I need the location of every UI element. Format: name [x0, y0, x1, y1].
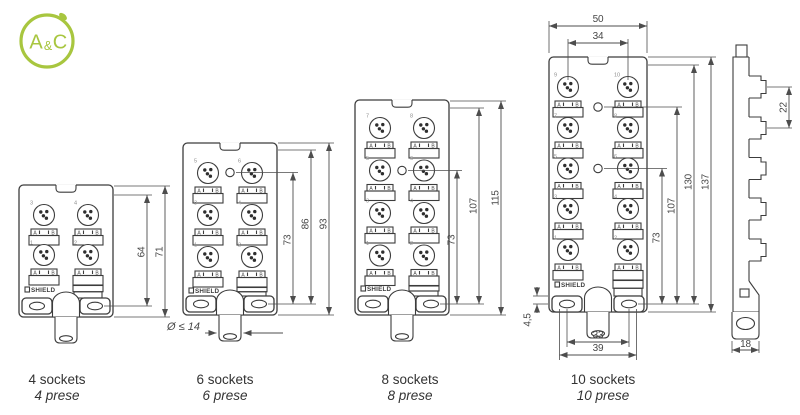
socket-number: 7 [554, 114, 557, 120]
socket-number: 9 [554, 73, 557, 79]
socket-pin [89, 217, 92, 220]
socket-pin [42, 254, 45, 257]
socket-pin [203, 210, 206, 213]
socket-number: 8 [410, 114, 413, 120]
socket-pin [86, 254, 89, 257]
socket-pin [203, 252, 206, 255]
cable-gland-body [55, 317, 77, 343]
socket-pin [253, 259, 256, 262]
socket-number: 4 [238, 201, 241, 207]
socket-pin [45, 250, 48, 253]
socket-pin [569, 204, 572, 207]
socket-pin [569, 89, 572, 92]
socket-pin [39, 210, 42, 213]
socket-pin [425, 172, 428, 175]
dimension-label: 50 [593, 14, 604, 25]
socket-pin [629, 123, 632, 126]
socket-pin [623, 245, 626, 248]
socket-pin [629, 130, 632, 133]
socket-pin [89, 210, 92, 213]
socket-pin [381, 172, 384, 175]
socket-pin [566, 86, 569, 89]
dimension-label: 64 [137, 246, 148, 257]
socket-pin [569, 211, 572, 214]
caption-sockets: 8 sockets [381, 372, 438, 387]
shield-label: SHIELD [367, 286, 392, 293]
socket-pin [626, 127, 629, 130]
mounting-hole [594, 103, 602, 111]
caption-prese: 8 prese [387, 388, 432, 403]
socket-number: 1 [30, 241, 33, 247]
socket-pin [629, 82, 632, 85]
socket-pin [623, 82, 626, 85]
socket-number: 3 [366, 199, 369, 205]
dimension-label: 22 [779, 102, 790, 113]
mounting-tab [186, 296, 216, 312]
caption-sockets: 4 sockets [28, 372, 85, 387]
cable-gland-body [219, 315, 241, 341]
socket-number: 4 [614, 195, 617, 201]
socket-pin [626, 249, 629, 252]
socket-pin [206, 172, 209, 175]
socket-pin [381, 257, 384, 260]
socket-number: 6 [410, 156, 413, 162]
socket-number: 2 [238, 243, 241, 249]
socket-pin [209, 168, 212, 171]
socket-pin [375, 123, 378, 126]
socket-pin [209, 217, 212, 220]
socket-pin [569, 252, 572, 255]
caption-prese: 6 prese [202, 388, 247, 403]
socket-pin [83, 210, 86, 213]
socket-pin [629, 163, 632, 166]
socket-pin [425, 123, 428, 126]
socket-number: 5 [366, 156, 369, 162]
socket-pin [566, 208, 569, 211]
socket-number: 6 [238, 159, 241, 165]
socket-number: 3 [30, 201, 33, 207]
caption-sockets: 6 sockets [196, 372, 253, 387]
mounting-tab [22, 298, 52, 314]
socket-pin [425, 208, 428, 211]
socket-pin [566, 127, 569, 130]
socket-pin [422, 212, 425, 215]
socket-number: 2 [74, 241, 77, 247]
socket-pin [45, 210, 48, 213]
shield-label: SHIELD [561, 282, 586, 289]
socket-pin [209, 175, 212, 178]
shield-label: SHIELD [195, 288, 220, 295]
dimension-label: 73 [652, 232, 663, 243]
socket-number: 1 [554, 236, 557, 242]
socket-pin [381, 165, 384, 168]
socket-pin [563, 245, 566, 248]
dimension-label: 71 [155, 246, 166, 257]
dimension-label: 107 [469, 197, 480, 214]
catalog-drawing-page: A & C 3AB4AB1AB2ABSHIELD64715AB6AB3AB4AB… [0, 0, 800, 415]
socket-pin [381, 130, 384, 133]
dimension-label: 18 [740, 339, 751, 350]
caption-prese: 10 prese [577, 388, 630, 403]
socket-pin [425, 165, 428, 168]
socket-pin [378, 212, 381, 215]
socket-pin [89, 250, 92, 253]
socket-pin [422, 127, 425, 130]
socket-number: 7 [366, 114, 369, 120]
socket-pin [209, 252, 212, 255]
socket-pin [209, 210, 212, 213]
socket-pin [253, 252, 256, 255]
socket-pin [566, 249, 569, 252]
socket-pin [425, 215, 428, 218]
logo-letter-c: C [53, 32, 67, 54]
socket-pin [629, 89, 632, 92]
socket-pin [629, 170, 632, 173]
cable-gland-dome [585, 287, 612, 312]
top-notch-fill [392, 99, 412, 107]
dimension-label: 4,5 [523, 313, 534, 327]
socket-pin [569, 82, 572, 85]
socket-pin [381, 123, 384, 126]
socket-pin [378, 127, 381, 130]
socket-pin [250, 214, 253, 217]
dimension-label: 73 [447, 234, 458, 245]
socket-number: 5 [554, 154, 557, 160]
socket-pin [569, 130, 572, 133]
socket-pin [563, 164, 566, 167]
technical-drawing-canvas: A & C 3AB4AB1AB2ABSHIELD64715AB6AB3AB4AB… [0, 0, 800, 415]
socket-pin [381, 208, 384, 211]
socket-pin [623, 204, 626, 207]
dimension-label: 107 [667, 197, 678, 214]
socket-pin [569, 163, 572, 166]
socket-pin [203, 168, 206, 171]
gland-diameter-note: Ø ≤ 14 [166, 321, 200, 333]
socket-number: 3 [194, 201, 197, 207]
socket-pin [623, 123, 626, 126]
socket-pin [626, 86, 629, 89]
dimension-label: 115 [491, 190, 502, 206]
socket-pin [375, 251, 378, 254]
side-cable-gland [732, 312, 759, 339]
socket-pin [253, 168, 256, 171]
dimension-label: 34 [593, 31, 604, 42]
socket-pin [247, 168, 250, 171]
dimension-label: 39 [593, 343, 604, 354]
shield-label: SHIELD [31, 287, 56, 294]
socket-number: 8 [614, 114, 617, 120]
socket-pin [419, 208, 422, 211]
mounting-hole [398, 166, 406, 174]
socket-pin [419, 166, 422, 169]
cable-gland-dome [53, 292, 80, 317]
socket-pin [206, 256, 209, 259]
socket-pin [375, 166, 378, 169]
dimension-label: 33 [593, 330, 604, 341]
top-notch-fill [220, 142, 240, 150]
socket-pin [42, 214, 45, 217]
socket-pin [626, 208, 629, 211]
socket-pin [629, 245, 632, 248]
cable-gland-body [391, 315, 413, 341]
socket-pin [83, 250, 86, 253]
socket-pin [247, 252, 250, 255]
dimension-label: 86 [301, 218, 312, 229]
socket-pin [253, 217, 256, 220]
socket-pin [253, 175, 256, 178]
socket-pin [39, 250, 42, 253]
socket-pin [563, 204, 566, 207]
socket-pin [425, 130, 428, 133]
socket-number: 1 [366, 241, 369, 247]
socket-number: 1 [194, 243, 197, 249]
caption-prese: 4 prese [34, 388, 79, 403]
socket-pin [623, 164, 626, 167]
socket-pin [422, 255, 425, 258]
dimension-label: 73 [283, 234, 294, 245]
socket-pin [86, 214, 89, 217]
mounting-tab [358, 296, 388, 312]
socket-pin [45, 257, 48, 260]
mounting-hole [226, 168, 234, 176]
socket-pin [419, 251, 422, 254]
caption-sockets: 10 sockets [571, 372, 636, 387]
socket-pin [45, 217, 48, 220]
socket-pin [563, 123, 566, 126]
socket-pin [629, 204, 632, 207]
socket-number: 3 [554, 195, 557, 201]
socket-number: 6 [614, 154, 617, 160]
socket-pin [378, 255, 381, 258]
top-notch-fill [588, 56, 608, 64]
socket-pin [569, 123, 572, 126]
socket-pin [381, 250, 384, 253]
socket-number: 2 [410, 241, 413, 247]
socket-pin [419, 123, 422, 126]
cable-gland-dome [389, 290, 416, 315]
socket-pin [253, 210, 256, 213]
socket-pin [563, 82, 566, 85]
dimension-label: 93 [319, 218, 330, 229]
socket-number: 2 [614, 236, 617, 242]
socket-pin [425, 250, 428, 253]
socket-pin [569, 170, 572, 173]
socket-pin [206, 214, 209, 217]
dimension-label: 137 [701, 173, 712, 190]
socket-pin [566, 168, 569, 171]
top-notch-fill [56, 184, 76, 192]
socket-pin [250, 256, 253, 259]
socket-number: 10 [614, 73, 620, 79]
socket-pin [569, 245, 572, 248]
socket-pin [247, 210, 250, 213]
socket-pin [381, 215, 384, 218]
dimension-label: 130 [684, 173, 695, 190]
logo-letter-a: A [29, 32, 43, 54]
socket-pin [89, 257, 92, 260]
socket-pin [629, 211, 632, 214]
socket-pin [629, 252, 632, 255]
socket-pin [378, 170, 381, 173]
socket-number: 4 [410, 199, 413, 205]
block-body [355, 100, 449, 315]
socket-pin [209, 259, 212, 262]
mounting-hole [594, 164, 602, 172]
cable-gland-dome [217, 290, 244, 315]
socket-pin [425, 257, 428, 260]
socket-pin [375, 208, 378, 211]
socket-number: 5 [194, 159, 197, 165]
logo-ampersand: & [44, 39, 53, 53]
socket-number: 4 [74, 201, 77, 207]
